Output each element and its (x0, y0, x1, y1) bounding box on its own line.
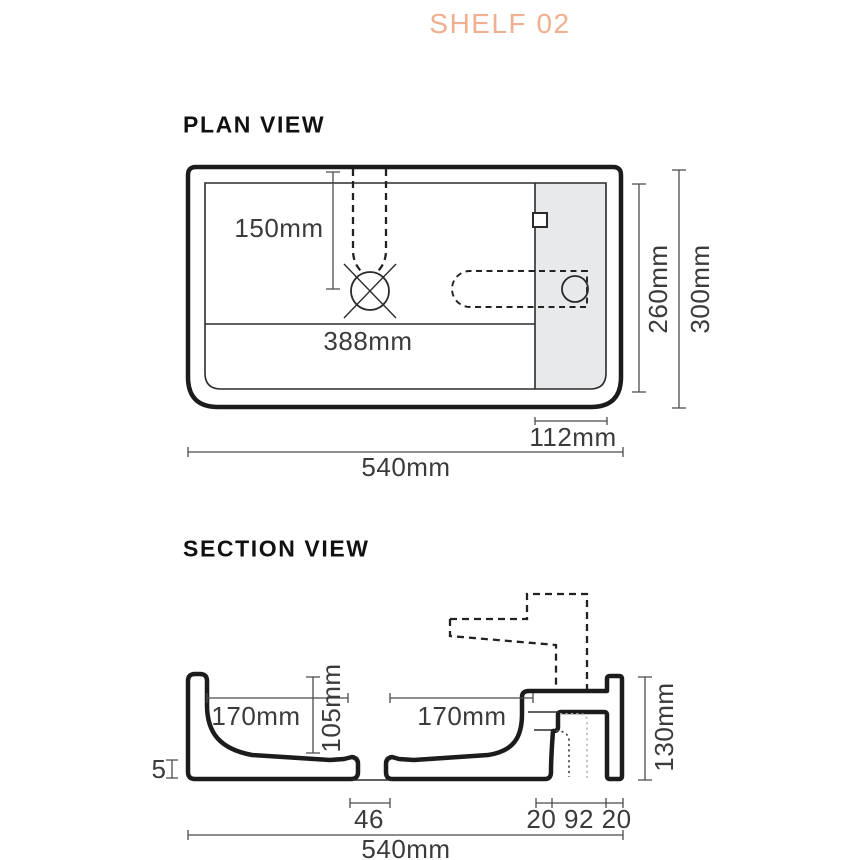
section-pipe-dotted-light (560, 714, 587, 778)
dim-base-thickness: 5 (152, 756, 167, 782)
dim-plan-overall-width: 540mm (361, 454, 450, 480)
dim-section-overall-width: 540mm (361, 836, 450, 860)
plan-fixing-square (533, 213, 547, 227)
dim-drain-width: 46 (354, 806, 384, 832)
technical-drawing-page: SHELF 02 PLAN VIEW SECTION VIEW 150mm 38… (0, 0, 860, 860)
page-title: SHELF 02 (429, 10, 570, 38)
dim-bracket-widths: 20 92 20 (526, 806, 631, 832)
drawing-canvas (0, 0, 860, 860)
dim-right-basin: 170mm (417, 703, 506, 729)
dim-shelf-height: 130mm (651, 682, 677, 771)
plan-view-heading: PLAN VIEW (183, 114, 325, 137)
dim-inner-depth: 260mm (645, 244, 671, 333)
dim-basin-width: 388mm (323, 328, 412, 354)
section-view-heading: SECTION VIEW (183, 538, 370, 561)
dim-shelf-width: 112mm (529, 424, 616, 450)
section-pipe-dotted-dark (556, 731, 569, 777)
plan-tap-dashed-outline (353, 169, 386, 271)
dim-tap-setback: 150mm (234, 215, 323, 241)
section-tap-dashed-outline (450, 594, 587, 689)
dim-left-basin: 170mm (211, 703, 300, 729)
dim-overall-depth: 300mm (687, 244, 713, 333)
dim-bowl-depth: 105mm (318, 663, 344, 752)
